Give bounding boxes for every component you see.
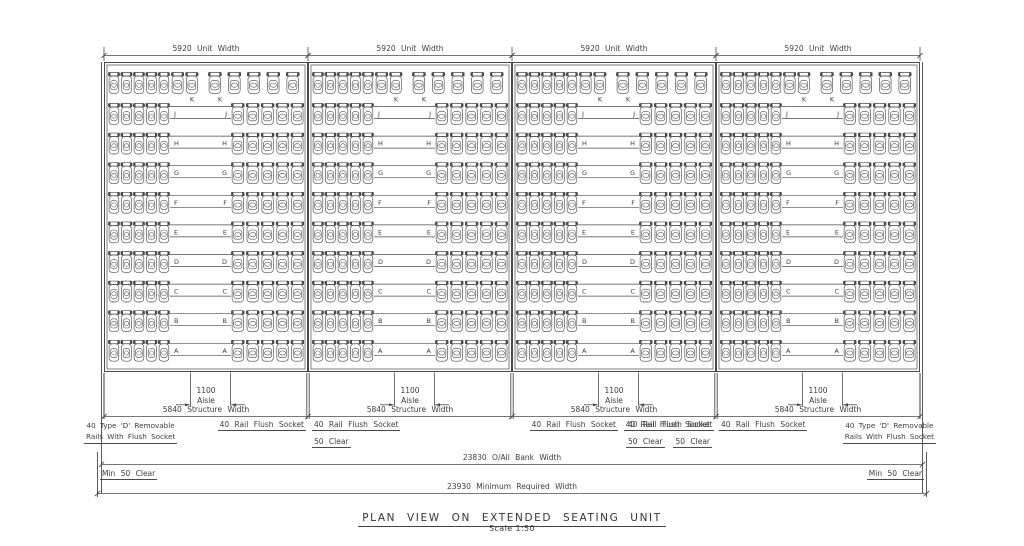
seat-symbol bbox=[450, 133, 463, 154]
svg-text:K: K bbox=[598, 96, 603, 104]
seat-symbol bbox=[858, 133, 871, 154]
seat-symbol bbox=[450, 192, 463, 213]
svg-text:D: D bbox=[834, 258, 839, 266]
svg-text:J: J bbox=[428, 110, 431, 118]
seat-symbol bbox=[276, 251, 289, 272]
seat-symbol bbox=[325, 72, 336, 93]
seat-symbol bbox=[684, 222, 697, 243]
svg-text:J: J bbox=[173, 110, 176, 118]
svg-text:D: D bbox=[630, 258, 635, 266]
svg-text:E: E bbox=[631, 228, 635, 236]
svg-text:H: H bbox=[222, 140, 227, 148]
seat-symbol bbox=[480, 340, 493, 361]
svg-text:D: D bbox=[174, 258, 179, 266]
seat-symbol bbox=[121, 72, 133, 93]
seat-symbol bbox=[758, 72, 770, 93]
seat-symbol bbox=[362, 251, 373, 272]
seat-symbol bbox=[158, 340, 170, 361]
seat-symbol bbox=[770, 133, 782, 154]
seat-symbol bbox=[541, 133, 553, 154]
seat-symbol bbox=[654, 340, 667, 361]
seat-symbol bbox=[108, 163, 120, 184]
seat-symbol bbox=[694, 72, 707, 93]
seat-symbol bbox=[121, 222, 133, 243]
svg-text:B: B bbox=[223, 317, 227, 325]
seat-symbol bbox=[121, 340, 133, 361]
unit-width-dim-label-2: 5920 Unit Width bbox=[308, 44, 512, 53]
svg-text:H: H bbox=[174, 140, 179, 148]
seat-symbol bbox=[246, 340, 259, 361]
seat-symbol bbox=[888, 340, 901, 361]
seat-symbol bbox=[450, 163, 463, 184]
aisle-dim-value: 1100 bbox=[384, 386, 436, 396]
removable-rails-line1: 40 Type 'D' Removable bbox=[843, 420, 936, 431]
seat-symbol bbox=[720, 72, 732, 93]
seat-symbol bbox=[495, 222, 508, 243]
svg-text:K: K bbox=[422, 96, 427, 104]
seat-symbol bbox=[566, 251, 578, 272]
seat-symbol bbox=[529, 251, 541, 272]
rail-flush-socket-label-5: 40 Rail Flush Socket bbox=[624, 420, 712, 431]
seat-symbol bbox=[669, 281, 682, 302]
seat-symbol bbox=[350, 222, 361, 243]
bank-width-dim-label: 23830 O/All Bank Width bbox=[312, 453, 712, 462]
seat-symbol bbox=[146, 103, 158, 124]
seat-symbol bbox=[435, 133, 448, 154]
svg-text:F: F bbox=[582, 199, 586, 207]
seat-symbol bbox=[529, 72, 541, 93]
seat-symbol bbox=[529, 163, 541, 184]
seat-symbol bbox=[108, 192, 120, 213]
seat-symbol bbox=[291, 103, 304, 124]
seat-symbol bbox=[733, 72, 745, 93]
svg-text:H: H bbox=[426, 140, 431, 148]
seat-symbol bbox=[158, 311, 170, 332]
seat-symbol bbox=[654, 311, 667, 332]
seat-symbol bbox=[362, 163, 373, 184]
seat-symbol bbox=[541, 311, 553, 332]
seat-symbol bbox=[720, 340, 732, 361]
seat-symbol bbox=[654, 251, 667, 272]
seat-symbol bbox=[325, 340, 336, 361]
seat-symbol bbox=[566, 222, 578, 243]
seat-symbol bbox=[276, 103, 289, 124]
seat-symbol bbox=[888, 163, 901, 184]
seat-symbol bbox=[133, 281, 145, 302]
seat-symbol bbox=[325, 103, 336, 124]
seat-symbol bbox=[247, 72, 260, 93]
seat-symbol bbox=[362, 222, 373, 243]
seat-symbol bbox=[669, 103, 682, 124]
seat-symbol bbox=[337, 103, 348, 124]
svg-text:E: E bbox=[786, 228, 790, 236]
seat-symbol bbox=[873, 281, 886, 302]
seat-symbol bbox=[362, 192, 373, 213]
seat-symbol bbox=[108, 251, 120, 272]
seat-symbol bbox=[146, 281, 158, 302]
seat-symbol bbox=[516, 72, 528, 93]
aisle-dim-label-1: 1100 Aisle bbox=[180, 386, 232, 405]
seat-symbol bbox=[231, 311, 244, 332]
seat-symbol bbox=[616, 72, 629, 93]
seat-symbol bbox=[593, 72, 606, 93]
seat-symbol bbox=[541, 72, 553, 93]
seat-symbol bbox=[435, 163, 448, 184]
svg-text:E: E bbox=[223, 228, 227, 236]
seat-symbol bbox=[554, 133, 566, 154]
svg-text:C: C bbox=[786, 288, 791, 296]
seat-symbol bbox=[516, 103, 528, 124]
svg-text:J: J bbox=[224, 110, 227, 118]
seat-symbol bbox=[276, 311, 289, 332]
seat-symbol bbox=[745, 311, 757, 332]
svg-text:G: G bbox=[222, 169, 227, 177]
svg-text:C: C bbox=[378, 288, 383, 296]
seat-symbol bbox=[541, 163, 553, 184]
seat-symbol bbox=[350, 103, 361, 124]
svg-text:H: H bbox=[834, 140, 839, 148]
seat-symbol bbox=[903, 133, 916, 154]
seat-symbol bbox=[733, 222, 745, 243]
seat-symbol bbox=[246, 133, 259, 154]
seat-symbol bbox=[246, 281, 259, 302]
seat-symbol bbox=[770, 72, 782, 93]
svg-text:D: D bbox=[222, 258, 227, 266]
seat-symbol bbox=[639, 103, 652, 124]
seat-symbol bbox=[480, 251, 493, 272]
removable-rails-line1: 40 Type 'D' Removable bbox=[84, 420, 177, 431]
aisle-dim-label-3: 1100 Aisle bbox=[588, 386, 640, 405]
seat-symbol bbox=[465, 163, 478, 184]
seat-symbol bbox=[720, 281, 732, 302]
rail-flush-socket-label-3: 40 Rail Flush Socket bbox=[530, 420, 618, 431]
svg-text:C: C bbox=[426, 288, 431, 296]
seat-symbol bbox=[843, 163, 856, 184]
seat-symbol bbox=[554, 163, 566, 184]
svg-text:E: E bbox=[835, 228, 839, 236]
seat-symbol bbox=[879, 72, 892, 93]
seat-symbol bbox=[720, 222, 732, 243]
clear-50-label-3: 50 Clear bbox=[673, 437, 712, 448]
svg-text:J: J bbox=[581, 110, 584, 118]
structure-width-dim-label-1: 5840 Structure Width bbox=[104, 405, 308, 414]
aisle-dim-word: Aisle bbox=[384, 396, 436, 406]
seat-symbol bbox=[541, 103, 553, 124]
svg-text:A: A bbox=[582, 347, 587, 355]
seat-symbol bbox=[720, 133, 732, 154]
svg-text:G: G bbox=[582, 169, 587, 177]
seat-symbol bbox=[699, 163, 712, 184]
svg-text:A: A bbox=[631, 347, 636, 355]
seat-symbol bbox=[465, 192, 478, 213]
seat-symbol bbox=[450, 251, 463, 272]
seat-symbol bbox=[720, 251, 732, 272]
seat-symbol bbox=[699, 192, 712, 213]
svg-text:K: K bbox=[218, 96, 223, 104]
seat-symbol bbox=[108, 103, 120, 124]
seat-symbol bbox=[720, 163, 732, 184]
seat-symbol bbox=[312, 311, 323, 332]
seat-symbol bbox=[121, 251, 133, 272]
min-50-clear-label-left: Min 50 Clear bbox=[100, 469, 157, 480]
seat-symbol bbox=[435, 251, 448, 272]
seat-symbol bbox=[770, 281, 782, 302]
seat-symbol bbox=[858, 311, 871, 332]
seat-symbol bbox=[325, 163, 336, 184]
svg-text:G: G bbox=[786, 169, 791, 177]
svg-text:D: D bbox=[786, 258, 791, 266]
seat-symbol bbox=[350, 340, 361, 361]
svg-text:J: J bbox=[632, 110, 635, 118]
drawing-scale: Scale 1:50 bbox=[0, 524, 1024, 533]
seat-symbol bbox=[639, 340, 652, 361]
seat-symbol bbox=[158, 103, 170, 124]
clear-50-label-2: 50 Clear bbox=[626, 437, 665, 448]
aisle-dim-word: Aisle bbox=[180, 396, 232, 406]
svg-text:A: A bbox=[835, 347, 840, 355]
seat-symbol bbox=[231, 163, 244, 184]
seat-symbol bbox=[770, 340, 782, 361]
seat-symbol bbox=[291, 311, 304, 332]
seat-symbol bbox=[566, 192, 578, 213]
seat-symbol bbox=[337, 163, 348, 184]
seat-symbol bbox=[432, 72, 445, 93]
svg-text:G: G bbox=[834, 169, 839, 177]
seat-symbol bbox=[261, 311, 274, 332]
clear-50-label-1: 50 Clear bbox=[312, 437, 351, 448]
seat-symbol bbox=[465, 103, 478, 124]
seat-symbol bbox=[733, 163, 745, 184]
seat-symbol bbox=[745, 103, 757, 124]
seat-symbol bbox=[858, 163, 871, 184]
removable-rails-line2: Rails With Flush Socket bbox=[84, 431, 177, 444]
seat-symbol bbox=[566, 281, 578, 302]
seat-symbol bbox=[450, 311, 463, 332]
seat-symbol bbox=[286, 72, 299, 93]
svg-text:J: J bbox=[377, 110, 380, 118]
seat-symbol bbox=[745, 340, 757, 361]
seat-symbol bbox=[888, 281, 901, 302]
seat-symbol bbox=[554, 311, 566, 332]
seat-symbol bbox=[231, 133, 244, 154]
seating-unit-3: KKJJHHGGFFEEDDCCBBAA bbox=[509, 53, 718, 419]
seat-symbol bbox=[480, 222, 493, 243]
seat-symbol bbox=[171, 72, 184, 93]
seat-symbol bbox=[873, 311, 886, 332]
seat-symbol bbox=[654, 222, 667, 243]
svg-text:B: B bbox=[786, 317, 790, 325]
seat-symbol bbox=[669, 222, 682, 243]
seat-symbol bbox=[888, 103, 901, 124]
svg-text:K: K bbox=[626, 96, 631, 104]
seat-symbol bbox=[471, 72, 484, 93]
seat-symbol bbox=[158, 133, 170, 154]
aisle-dim-word: Aisle bbox=[588, 396, 640, 406]
svg-text:J: J bbox=[836, 110, 839, 118]
seat-symbol bbox=[261, 192, 274, 213]
seat-symbol bbox=[291, 281, 304, 302]
svg-text:D: D bbox=[378, 258, 383, 266]
seat-symbol bbox=[516, 311, 528, 332]
seat-symbol bbox=[325, 251, 336, 272]
structure-width-dim-label-2: 5840 Structure Width bbox=[308, 405, 512, 414]
seat-symbol bbox=[699, 340, 712, 361]
seat-symbol bbox=[133, 340, 145, 361]
seat-symbol bbox=[146, 251, 158, 272]
seat-symbol bbox=[654, 133, 667, 154]
seat-symbol bbox=[873, 222, 886, 243]
svg-text:E: E bbox=[378, 228, 382, 236]
svg-text:K: K bbox=[394, 96, 399, 104]
svg-text:F: F bbox=[786, 199, 790, 207]
seat-symbol bbox=[350, 311, 361, 332]
seat-symbol bbox=[231, 281, 244, 302]
seat-symbol bbox=[480, 311, 493, 332]
seat-symbol bbox=[554, 251, 566, 272]
seat-symbol bbox=[699, 133, 712, 154]
seat-symbol bbox=[312, 251, 323, 272]
seat-symbol bbox=[451, 72, 464, 93]
seat-symbol bbox=[362, 133, 373, 154]
seating-unit-1: KKJJHHGGFFEEDDCCBBAA bbox=[101, 53, 310, 419]
svg-text:B: B bbox=[378, 317, 382, 325]
seat-symbol bbox=[231, 251, 244, 272]
seat-symbol bbox=[231, 222, 244, 243]
seat-symbol bbox=[669, 163, 682, 184]
seat-symbol bbox=[636, 72, 649, 93]
seat-symbol bbox=[903, 192, 916, 213]
seat-symbol bbox=[312, 72, 323, 93]
seat-symbol bbox=[435, 311, 448, 332]
seat-symbol bbox=[639, 251, 652, 272]
seat-symbol bbox=[579, 72, 592, 93]
svg-text:F: F bbox=[427, 199, 431, 207]
seat-symbol bbox=[516, 340, 528, 361]
seat-symbol bbox=[758, 281, 770, 302]
seat-symbol bbox=[843, 133, 856, 154]
seat-symbol bbox=[350, 251, 361, 272]
seat-symbol bbox=[745, 251, 757, 272]
seat-symbol bbox=[639, 133, 652, 154]
seat-symbol bbox=[529, 311, 541, 332]
seat-symbol bbox=[639, 281, 652, 302]
svg-text:G: G bbox=[630, 169, 635, 177]
seat-symbol bbox=[699, 222, 712, 243]
seat-symbol bbox=[480, 163, 493, 184]
seat-symbol bbox=[733, 133, 745, 154]
svg-text:B: B bbox=[631, 317, 635, 325]
seat-symbol bbox=[858, 251, 871, 272]
seat-symbol bbox=[669, 251, 682, 272]
seat-symbol bbox=[490, 72, 503, 93]
seat-symbol bbox=[903, 340, 916, 361]
seat-symbol bbox=[350, 133, 361, 154]
seat-symbol bbox=[312, 133, 323, 154]
seat-symbol bbox=[684, 281, 697, 302]
seat-symbol bbox=[133, 251, 145, 272]
seat-symbol bbox=[541, 340, 553, 361]
seat-symbol bbox=[480, 103, 493, 124]
seat-symbol bbox=[888, 133, 901, 154]
seat-symbol bbox=[276, 163, 289, 184]
seat-symbol bbox=[435, 103, 448, 124]
seat-symbol bbox=[158, 281, 170, 302]
seat-symbol bbox=[516, 163, 528, 184]
seat-symbol bbox=[121, 163, 133, 184]
seat-symbol bbox=[699, 281, 712, 302]
svg-text:F: F bbox=[223, 199, 227, 207]
seat-symbol bbox=[261, 251, 274, 272]
seat-symbol bbox=[246, 103, 259, 124]
structure-width-dim-label-4: 5840 Structure Width bbox=[716, 405, 920, 414]
seat-symbol bbox=[783, 72, 796, 93]
aisle-dim-value: 1100 bbox=[180, 386, 232, 396]
seat-symbol bbox=[133, 192, 145, 213]
seat-symbol bbox=[541, 222, 553, 243]
seat-symbol bbox=[133, 133, 145, 154]
removable-rails-line2: Rails With Flush Socket bbox=[843, 431, 936, 444]
seat-symbol bbox=[261, 340, 274, 361]
seat-symbol bbox=[770, 222, 782, 243]
rail-flush-socket-label-1: 40 Rail Flush Socket bbox=[218, 420, 306, 431]
svg-text:E: E bbox=[174, 228, 178, 236]
seat-symbol bbox=[516, 222, 528, 243]
seat-symbol bbox=[684, 311, 697, 332]
seat-symbol bbox=[554, 281, 566, 302]
seat-symbol bbox=[654, 163, 667, 184]
seat-symbol bbox=[873, 192, 886, 213]
seat-symbol bbox=[903, 222, 916, 243]
svg-text:C: C bbox=[630, 288, 635, 296]
seat-symbol bbox=[246, 163, 259, 184]
seat-symbol bbox=[228, 72, 241, 93]
seat-symbol bbox=[312, 222, 323, 243]
seat-symbol bbox=[133, 311, 145, 332]
svg-text:G: G bbox=[378, 169, 383, 177]
aisle-dim-label-2: 1100 Aisle bbox=[384, 386, 436, 405]
seat-symbol bbox=[843, 222, 856, 243]
seat-symbol bbox=[684, 163, 697, 184]
seat-symbol bbox=[858, 192, 871, 213]
seat-symbol bbox=[350, 192, 361, 213]
seat-symbol bbox=[758, 311, 770, 332]
seat-symbol bbox=[465, 251, 478, 272]
seat-symbol bbox=[745, 163, 757, 184]
seat-symbol bbox=[480, 133, 493, 154]
svg-text:H: H bbox=[582, 140, 587, 148]
seat-symbol bbox=[770, 103, 782, 124]
seat-symbol bbox=[720, 192, 732, 213]
seat-symbol bbox=[903, 251, 916, 272]
svg-text:K: K bbox=[830, 96, 835, 104]
seat-symbol bbox=[231, 192, 244, 213]
svg-text:G: G bbox=[174, 169, 179, 177]
seat-symbol bbox=[733, 311, 745, 332]
svg-text:C: C bbox=[834, 288, 839, 296]
seat-symbol bbox=[325, 192, 336, 213]
seat-symbol bbox=[133, 72, 145, 93]
seat-symbol bbox=[770, 251, 782, 272]
svg-text:A: A bbox=[786, 347, 791, 355]
seat-symbol bbox=[858, 103, 871, 124]
seat-symbol bbox=[675, 72, 688, 93]
seat-symbol bbox=[267, 72, 280, 93]
seat-symbol bbox=[312, 281, 323, 302]
seat-symbol bbox=[450, 103, 463, 124]
seat-symbol bbox=[684, 192, 697, 213]
seat-symbol bbox=[745, 222, 757, 243]
seat-symbol bbox=[185, 72, 198, 93]
